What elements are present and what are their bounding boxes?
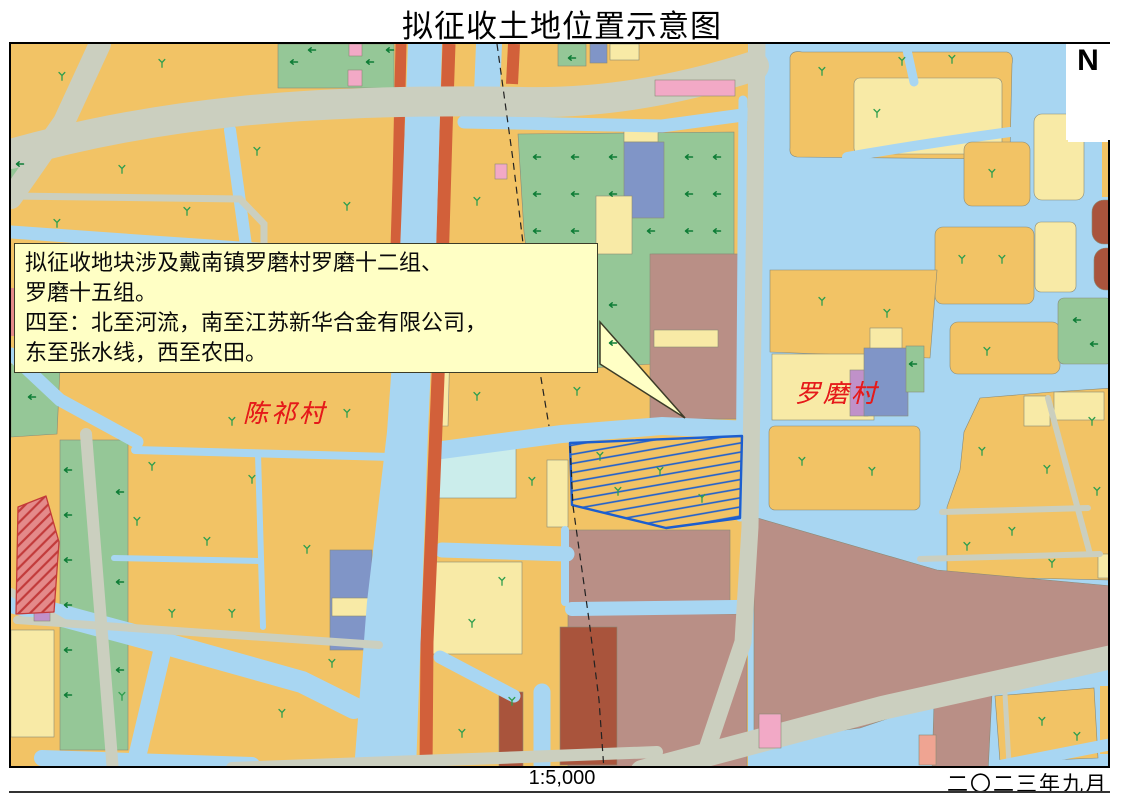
sheet-bottom-border [9,791,1110,793]
map-layers [11,44,1108,766]
north-arrow-box: N [1066,44,1110,140]
callout-line: 拟征收地块涉及戴南镇罗磨村罗磨十二组、 [25,248,587,278]
page-title: 拟征收土地位置示意图 [0,1,1124,46]
village-label-chenqi: 陈祁村 [243,394,327,430]
map-frame [9,42,1110,768]
map-canvas [11,44,1108,766]
callout-line: 四至：北至河流，南至江苏新华合金有限公司， [25,308,587,338]
village-label-luomo: 罗磨村 [795,374,879,410]
callout-line: 东至张水线，西至农田。 [25,338,587,368]
callout-box: 拟征收地块涉及戴南镇罗磨村罗磨十二组、 罗磨十五组。 四至：北至河流，南至江苏新… [14,243,598,373]
north-label: N [1066,44,1110,78]
callout-line: 罗磨十五组。 [25,278,587,308]
map-sheet: 拟征收土地位置示意图 [0,0,1124,794]
